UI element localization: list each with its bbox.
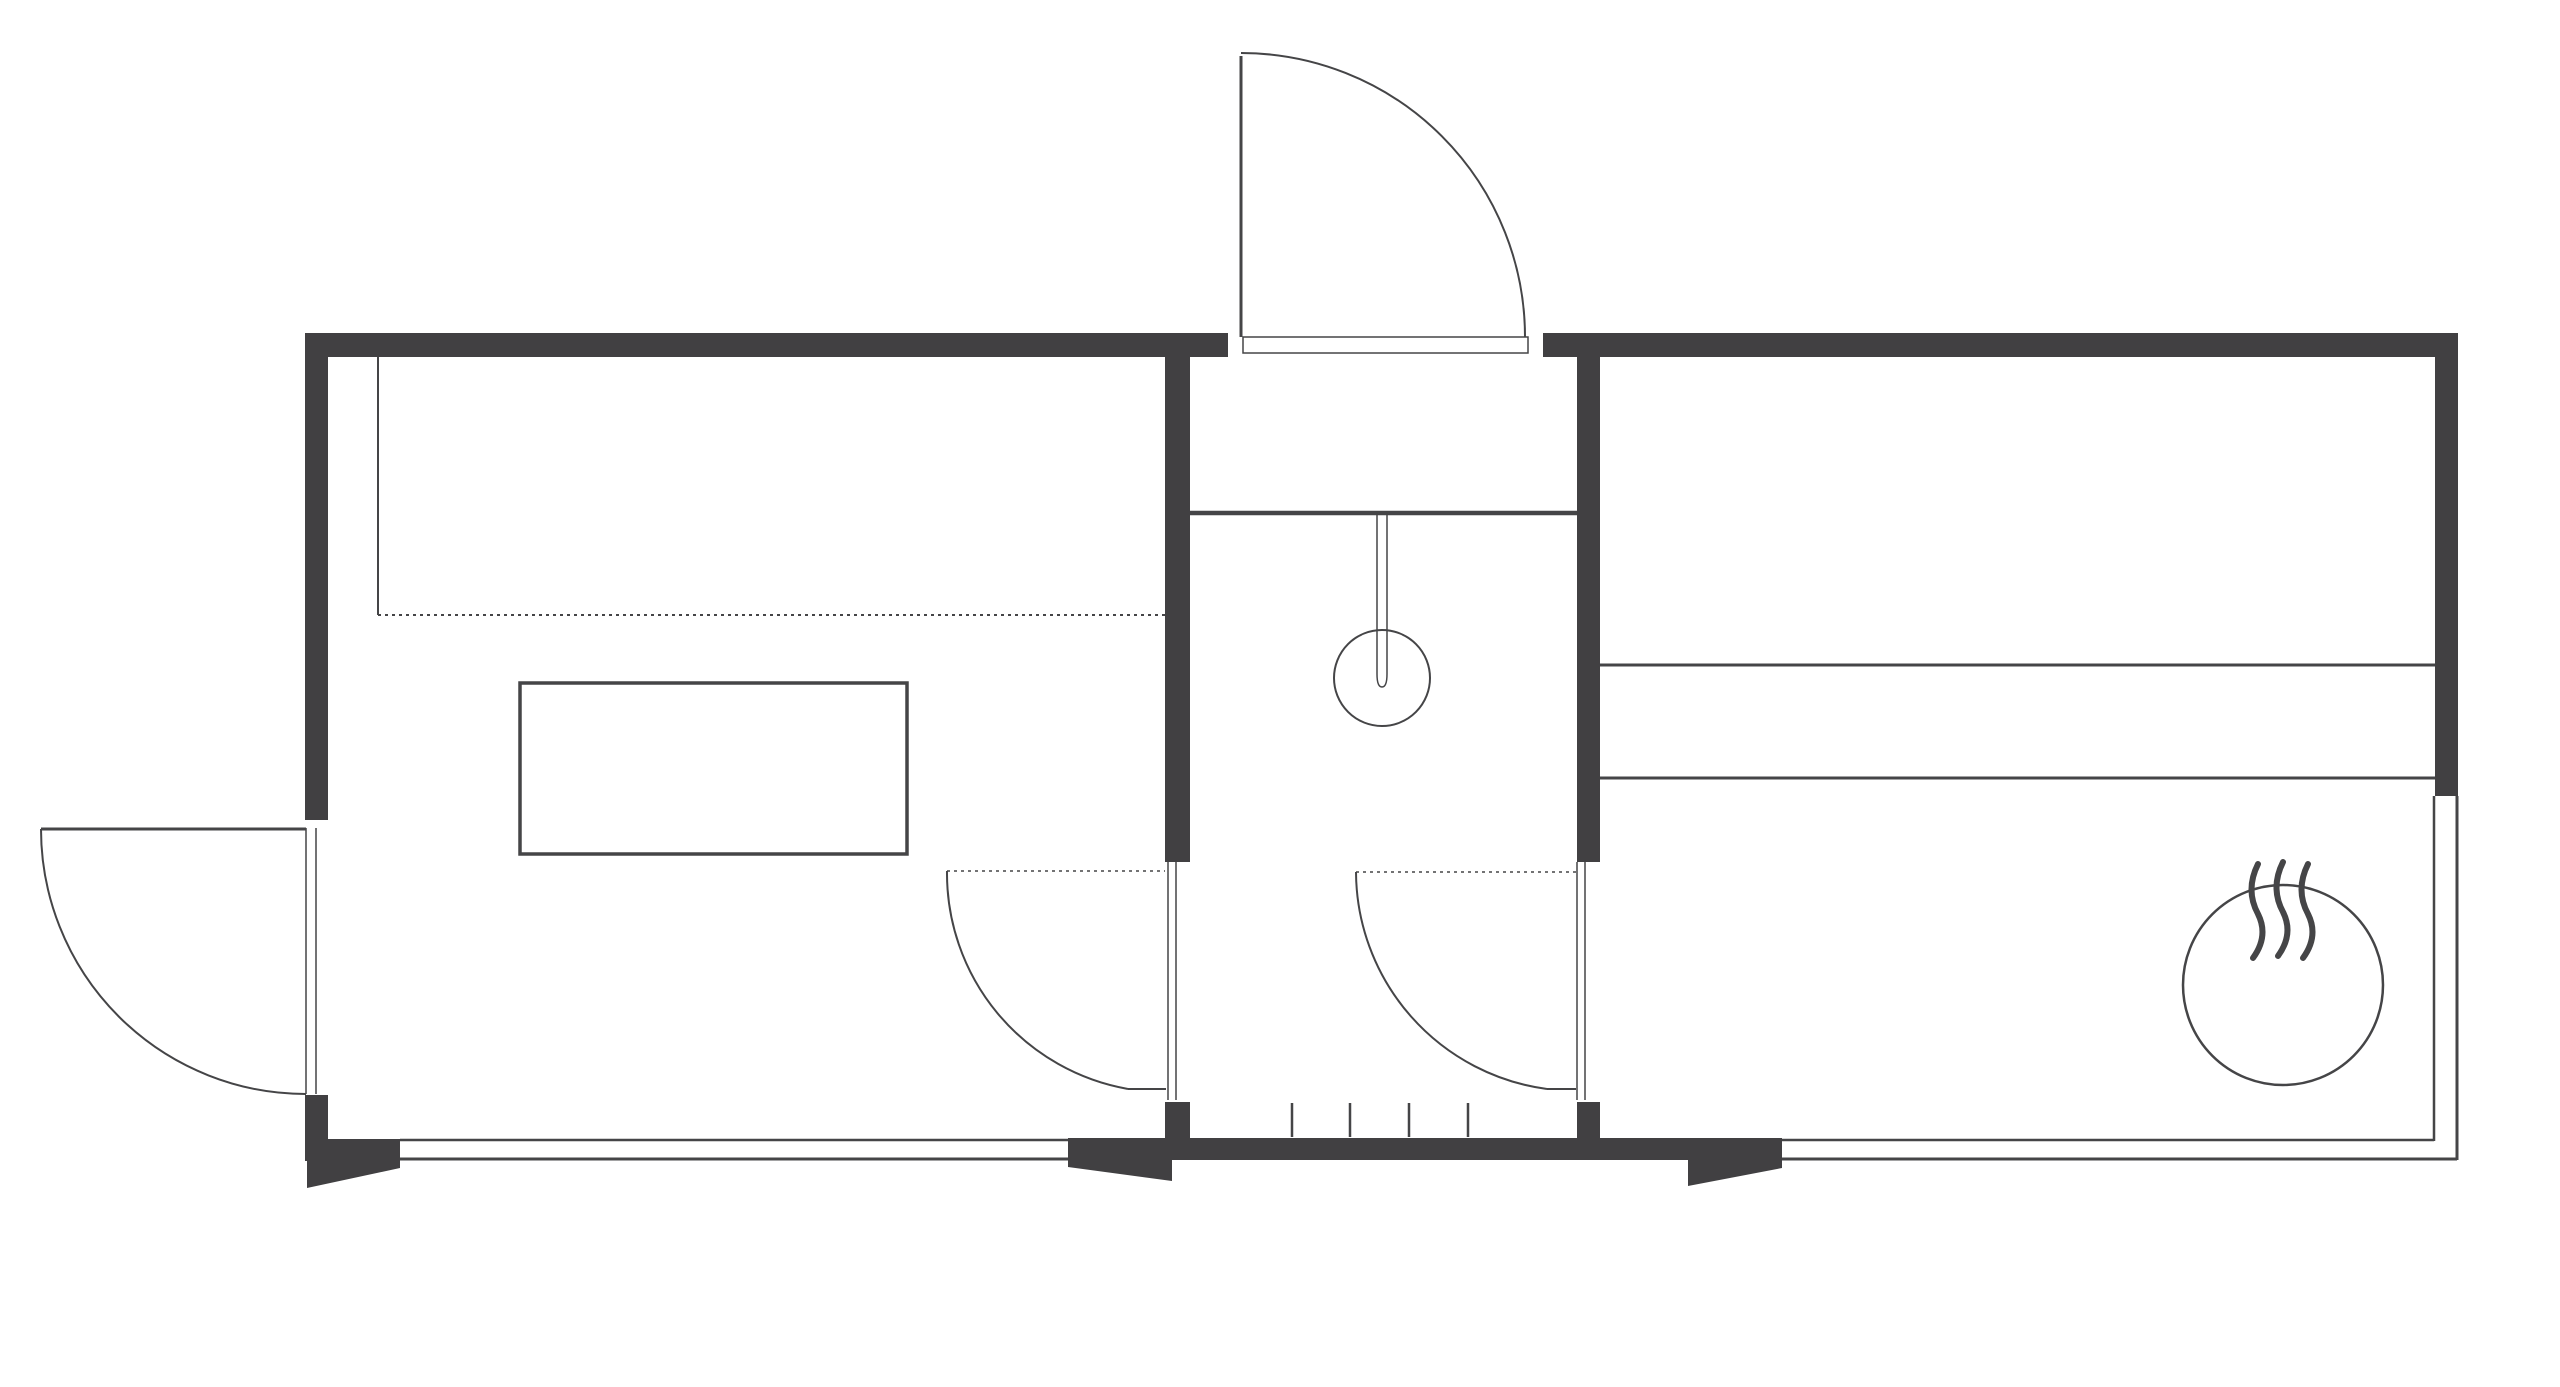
table (520, 683, 907, 854)
entry-door-arc (1241, 53, 1525, 337)
ramp-vestibule-right (1688, 1160, 1782, 1186)
heater-steam-wave-2 (2277, 862, 2288, 956)
floor-plan-page (0, 0, 2560, 1387)
ramp-left-corner (307, 1139, 400, 1188)
door-right-arc (1356, 872, 1547, 1089)
vestibule-floor-band (1068, 1138, 1782, 1160)
wall-partition-left-stub (1165, 1102, 1190, 1139)
wall-top-left (305, 333, 1228, 357)
wall-partition-left (1165, 357, 1190, 862)
door-left-arc (947, 871, 1128, 1089)
shower-head (1334, 630, 1430, 726)
heater-steam-wave-3 (2302, 864, 2313, 958)
wall-top-right (1543, 333, 2458, 357)
heater-steam-wave-1 (2252, 864, 2263, 958)
ramp-vestibule-left (1068, 1160, 1172, 1181)
wall-partition-right-stub (1577, 1102, 1600, 1139)
wall-right-upper (2435, 333, 2458, 796)
floor-plan-svg (0, 0, 2560, 1387)
wall-left-upper (305, 333, 328, 820)
entry-door-sill (1243, 337, 1528, 353)
wall-partition-right (1577, 357, 1600, 862)
shower-rod (1377, 513, 1387, 687)
left-door-arc (41, 829, 306, 1094)
